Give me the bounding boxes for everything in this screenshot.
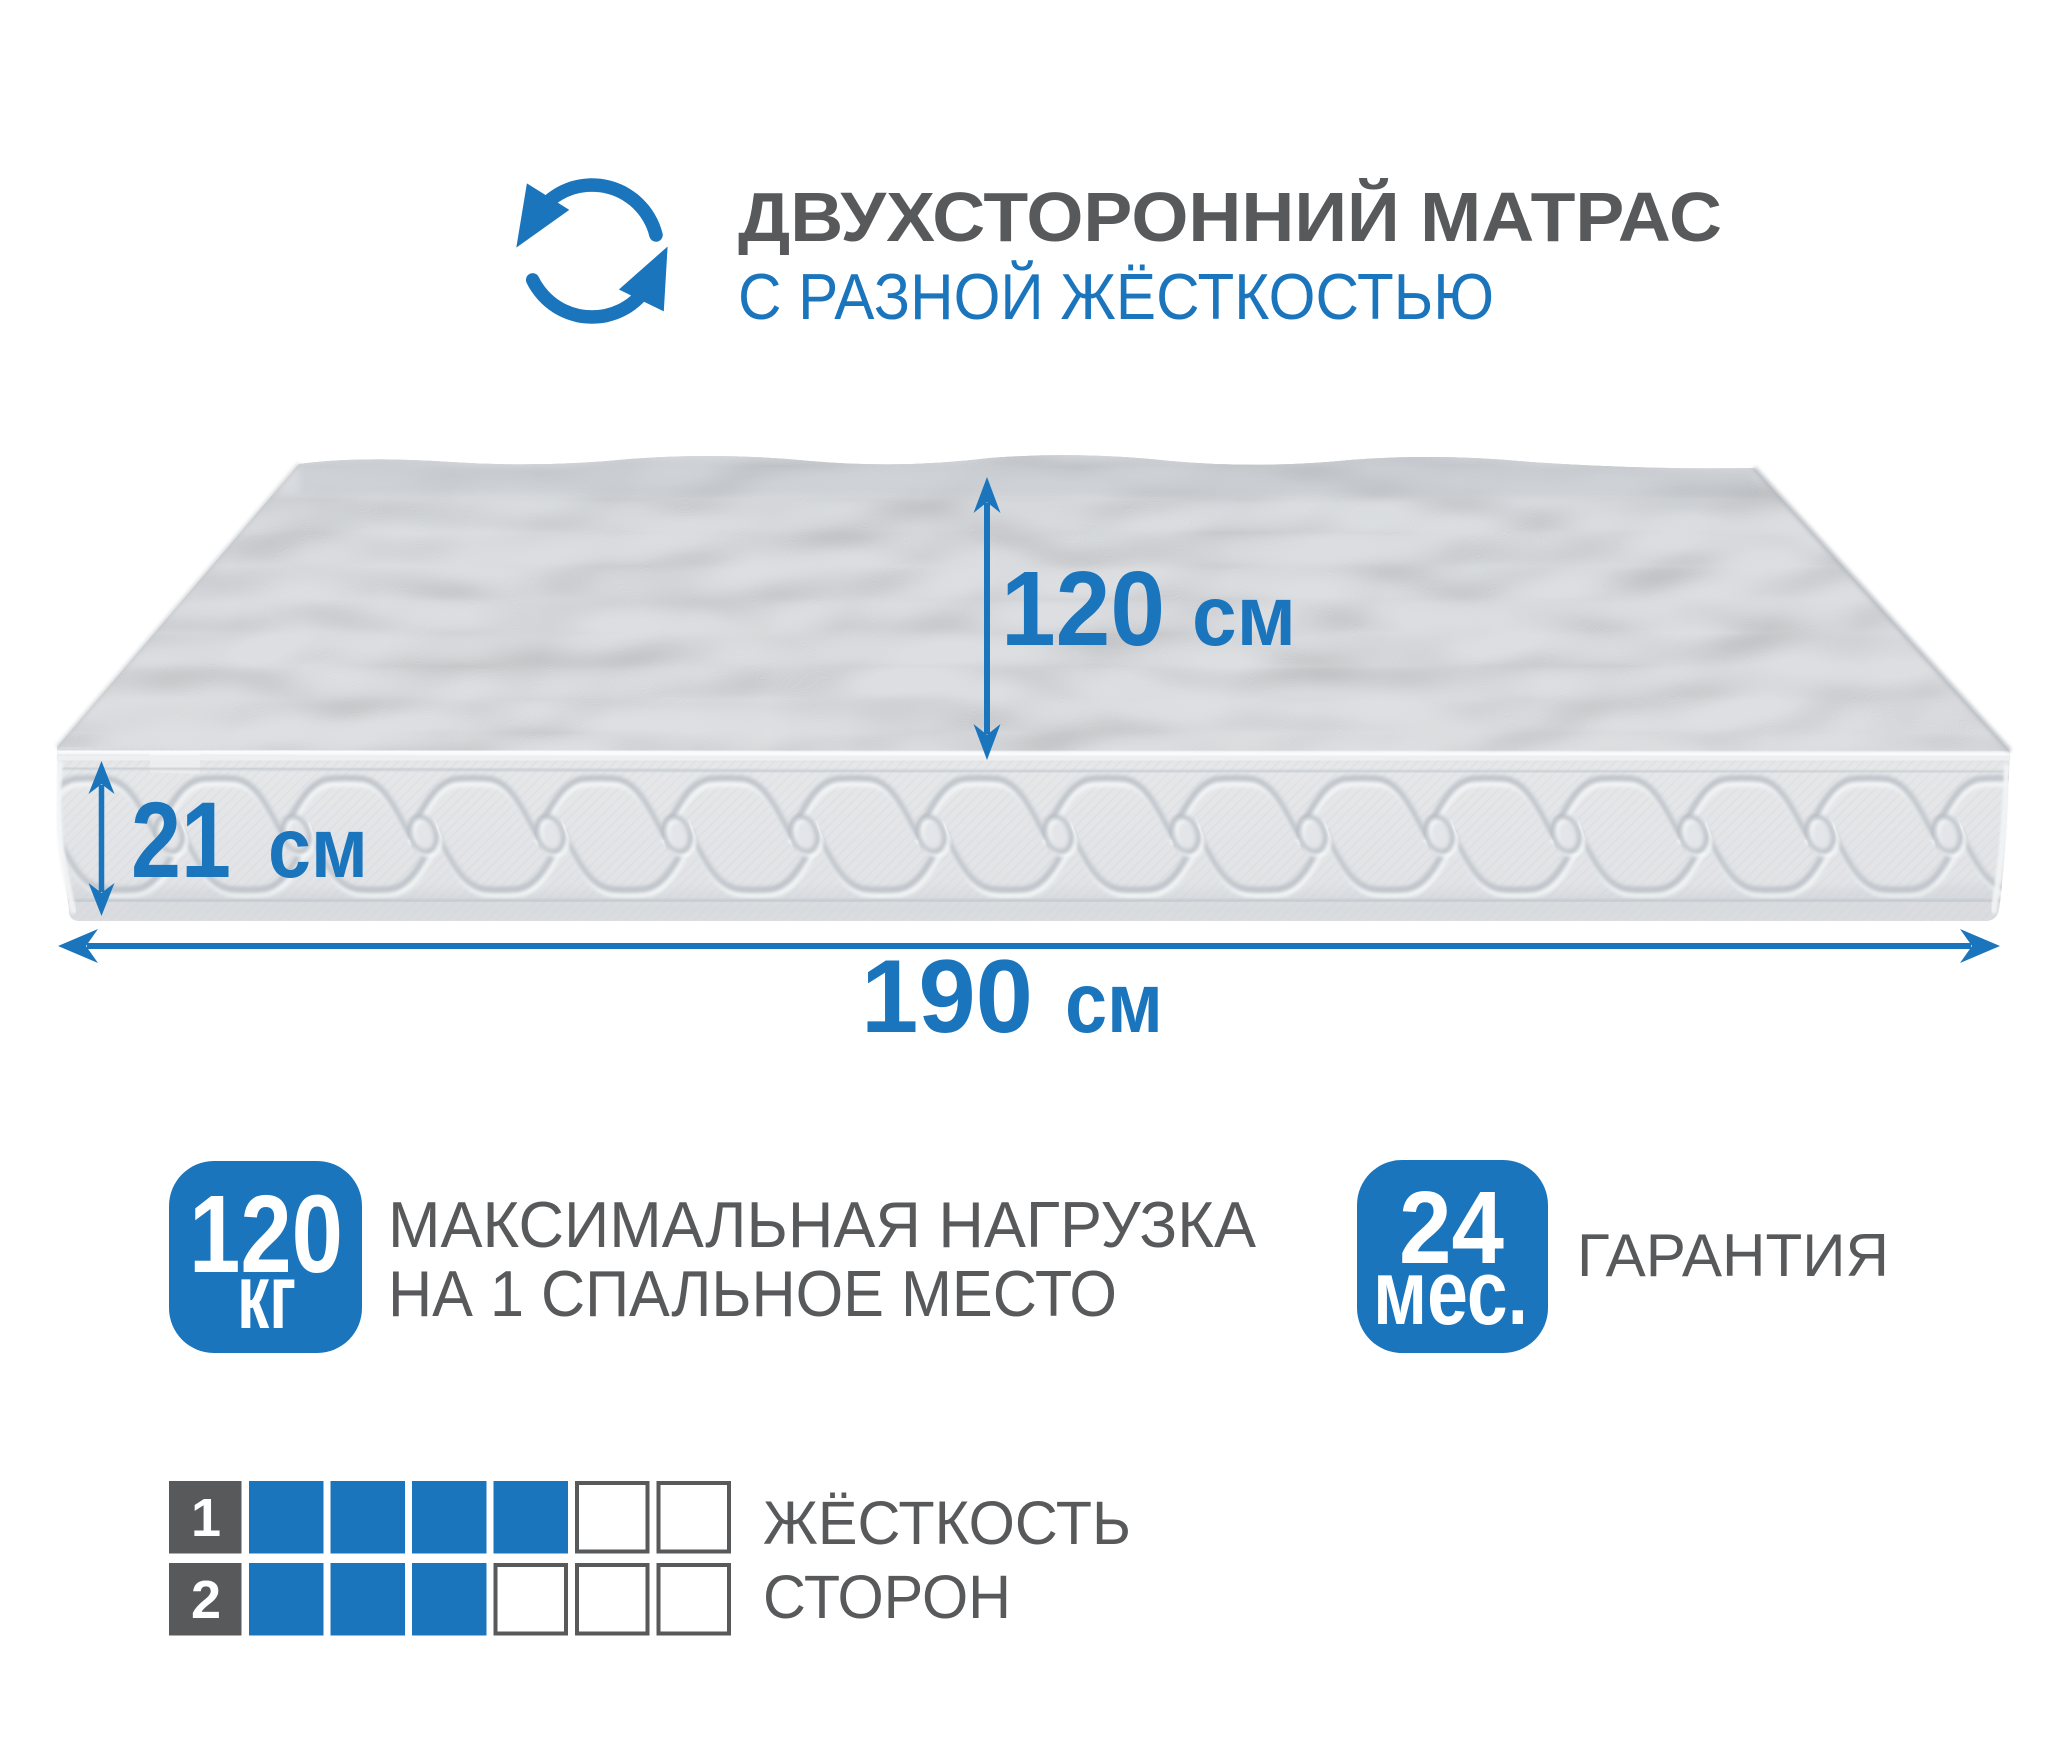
svg-text:120: 120 [1001,550,1165,668]
svg-text:МАКСИМАЛЬНАЯ НАГРУЗКА: МАКСИМАЛЬНАЯ НАГРУЗКА [388,1188,1257,1261]
svg-text:см: см [268,801,368,896]
svg-text:1: 1 [191,1488,221,1548]
svg-text:ГАРАНТИЯ: ГАРАНТИЯ [1577,1222,1889,1289]
svg-text:21: 21 [131,779,231,900]
svg-text:кг: кг [237,1246,296,1348]
svg-text:см: см [1065,956,1163,1051]
svg-text:190: 190 [861,939,1033,1055]
svg-text:НА 1 СПАЛЬНОЕ МЕСТО: НА 1 СПАЛЬНОЕ МЕСТО [388,1257,1117,1330]
svg-text:см: см [1192,569,1296,664]
svg-text:ДВУХСТОРОННИЙ МАТРАС: ДВУХСТОРОННИЙ МАТРАС [738,177,1722,256]
svg-text:2: 2 [191,1570,221,1630]
svg-text:мес.: мес. [1373,1242,1528,1344]
svg-text:СТОРОН: СТОРОН [763,1563,1011,1631]
svg-text:С РАЗНОЙ ЖЁСТКОСТЬЮ: С РАЗНОЙ ЖЁСТКОСТЬЮ [738,260,1494,333]
svg-text:ЖЁСТКОСТЬ: ЖЁСТКОСТЬ [763,1489,1131,1557]
